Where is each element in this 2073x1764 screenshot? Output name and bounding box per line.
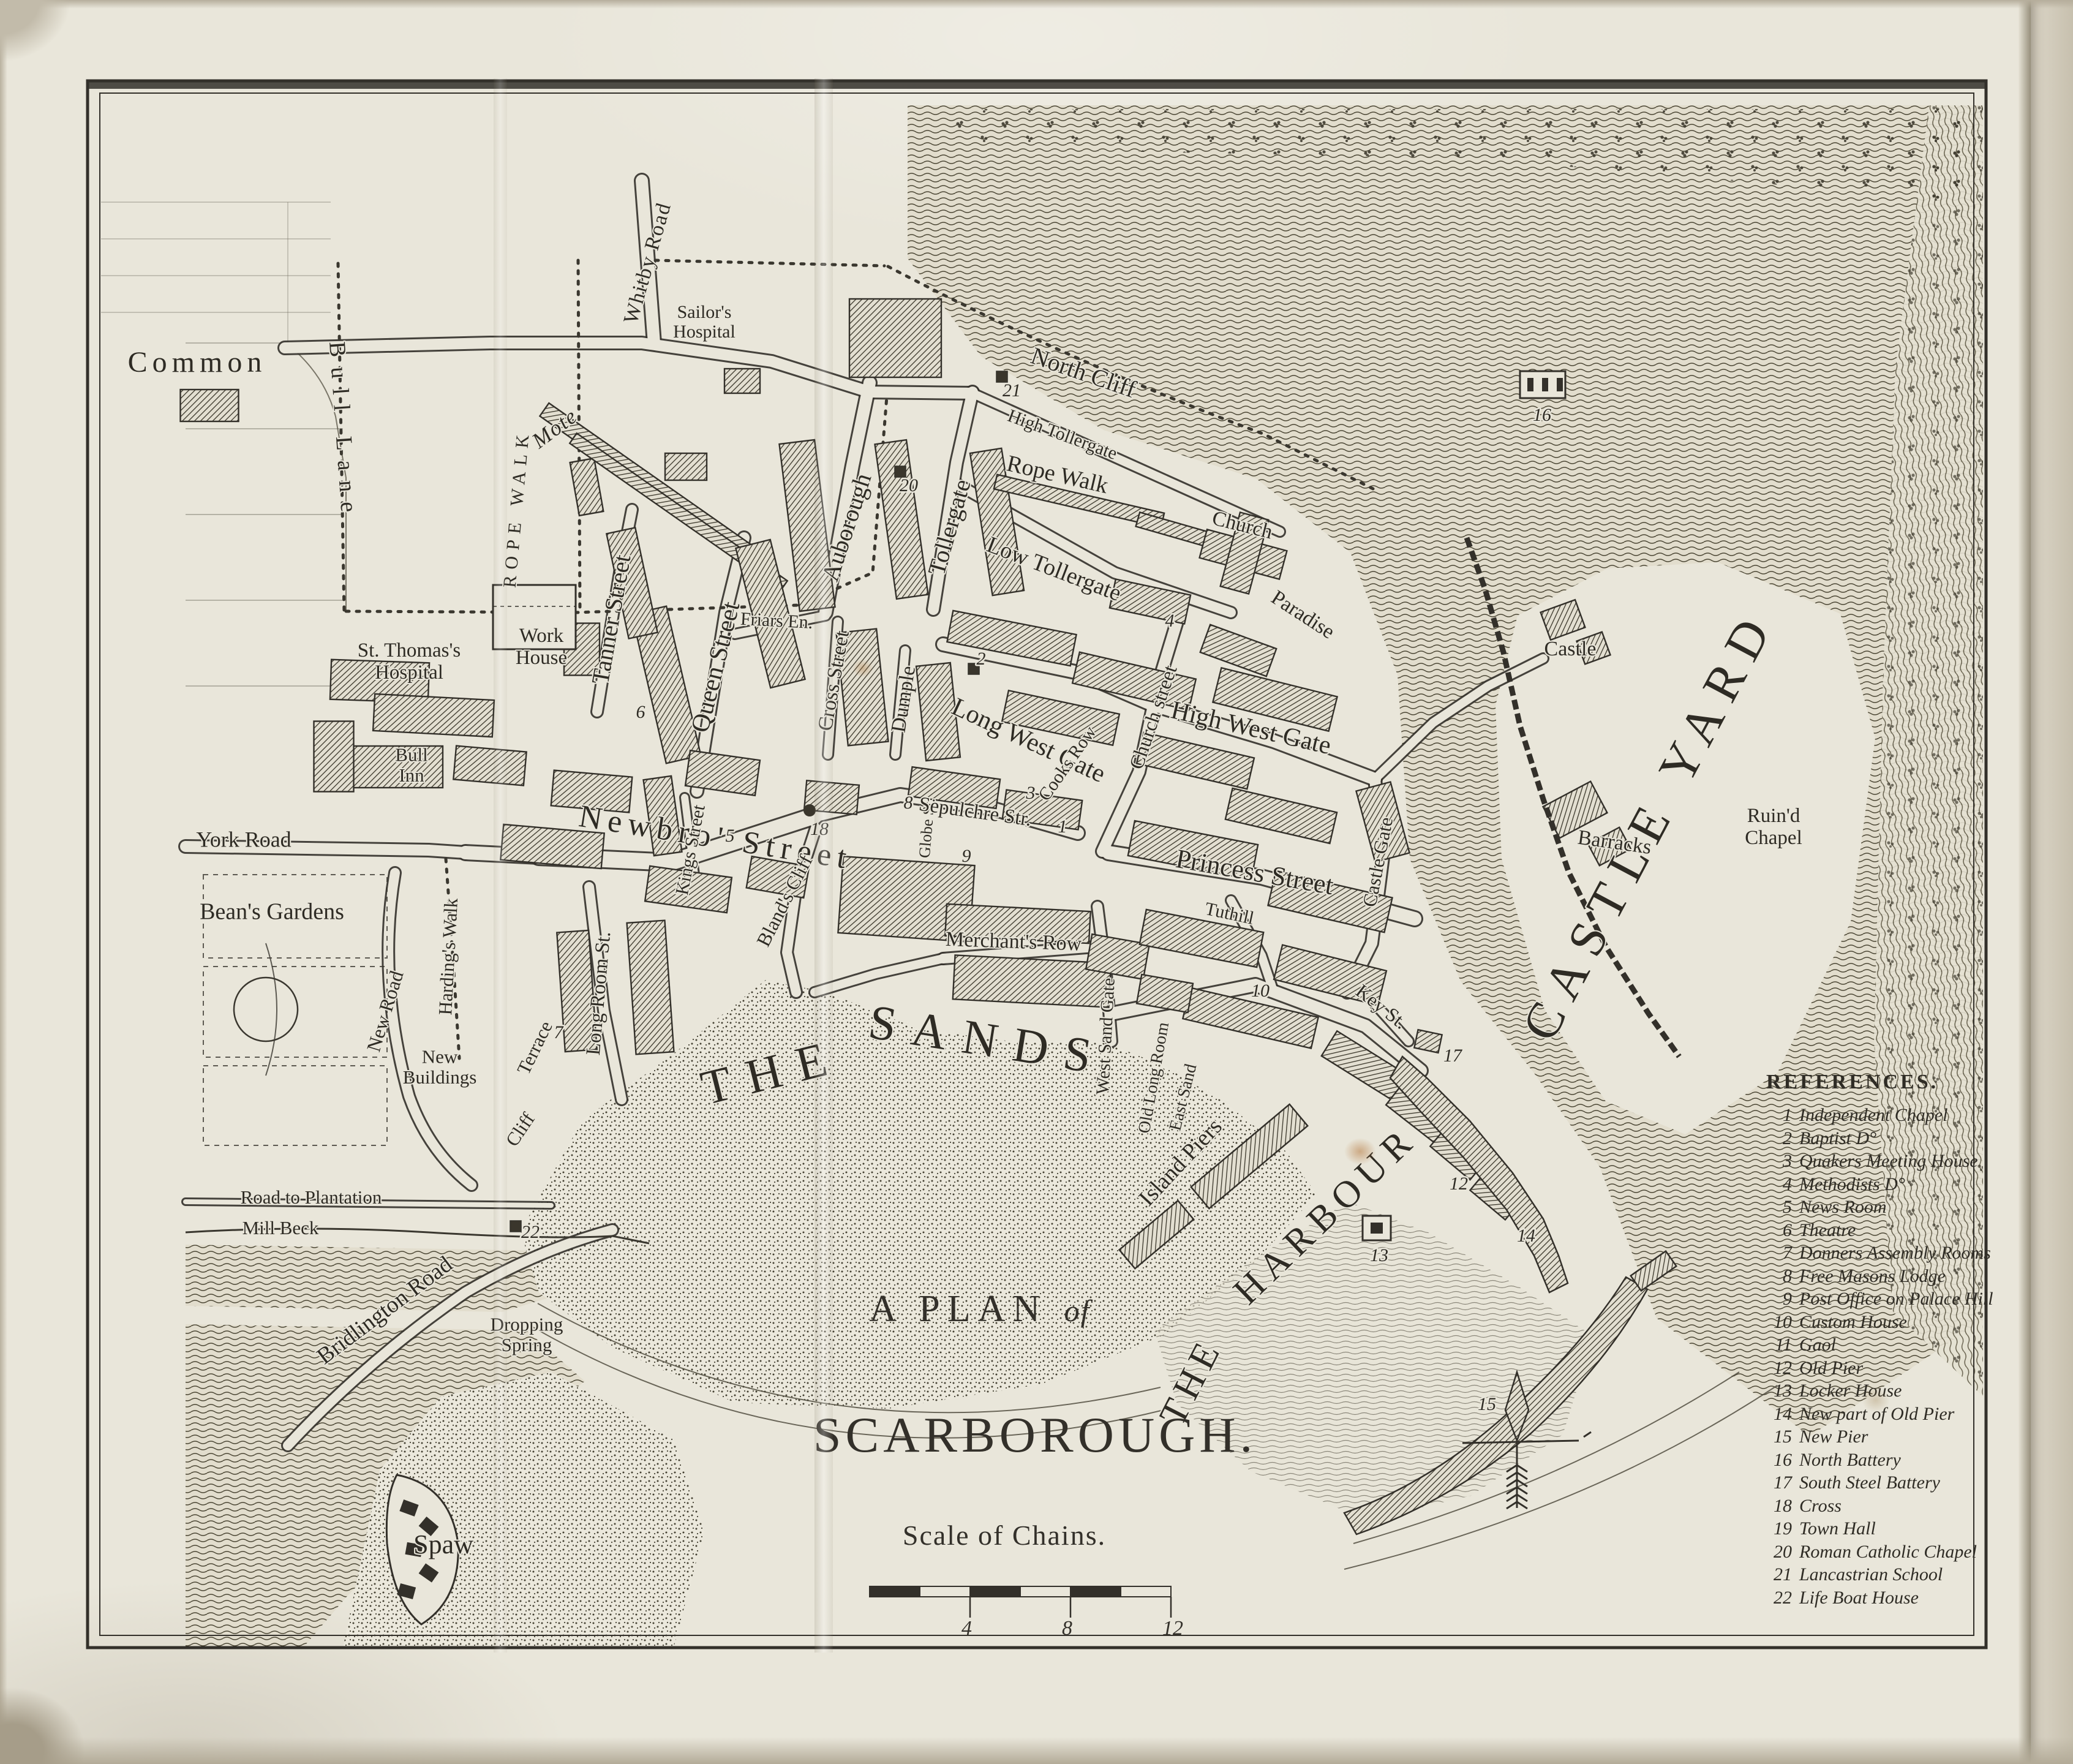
reference-label: New part of Old Pier — [1799, 1403, 2056, 1426]
reference-label: Quakers Meeting House — [1799, 1150, 2056, 1173]
building-block — [875, 440, 928, 599]
reference-label: North Battery — [1799, 1449, 2056, 1472]
reference-label: Donners Assembly Rooms — [1799, 1242, 2056, 1265]
reference-item: 4Methodists D° — [1759, 1173, 2056, 1196]
building-block — [849, 299, 941, 377]
reference-label: Post Office on Palace Hill — [1799, 1287, 2056, 1311]
scale-bar-segment — [920, 1586, 970, 1597]
fort-gun-platform — [1557, 378, 1563, 391]
map-label-mill-beck: Mill Beck — [243, 1217, 319, 1238]
reference-number: 21 — [1759, 1563, 1799, 1586]
map-label-ruind-chapel: Ruin'dChapel — [1745, 805, 1802, 849]
reference-label: Baptist D° — [1799, 1127, 2056, 1150]
reference-number: 17 — [1759, 1471, 1799, 1494]
map-label-rope-walk-west: ROPE WALK — [500, 428, 534, 589]
reference-number: 22 — [1759, 1586, 1799, 1610]
building-block — [453, 746, 526, 786]
scale-bar-tick-label: 4 — [961, 1617, 972, 1640]
reference-label: Free Masons Lodge — [1799, 1265, 2056, 1288]
map-label-york-road: York Road — [196, 827, 291, 851]
reference-item: 14New part of Old Pier — [1759, 1403, 2056, 1426]
scale-bar-tick-label: 12 — [1162, 1617, 1183, 1640]
map-label-queen-street: Queen Street — [686, 599, 745, 736]
reference-item: 15New Pier — [1759, 1425, 2056, 1449]
scale-bar-segment — [1121, 1586, 1171, 1597]
map-title-line-3: Scale of Chains. — [863, 1519, 1145, 1551]
scale-bar-segment — [1070, 1586, 1121, 1597]
reference-number: 5 — [1759, 1196, 1799, 1219]
reference-item: 9Post Office on Palace Hill — [1759, 1287, 2056, 1311]
marker-number-5: 5 — [726, 826, 735, 846]
reference-number: 9 — [1759, 1287, 1799, 1311]
map-label-spaw: Spaw — [413, 1529, 473, 1559]
garden-circle — [234, 978, 298, 1041]
reference-number: 12 — [1759, 1357, 1799, 1380]
marker-building-22 — [510, 1221, 521, 1232]
map-label-castle-gate: Castle Gate — [1358, 815, 1398, 909]
map-label-hardings-walk: Harding's Walk — [434, 897, 462, 1016]
building-block — [1200, 625, 1276, 676]
scale-bar-segment — [970, 1586, 1020, 1597]
footpath-dotted — [655, 260, 884, 266]
reference-label: Custom House — [1799, 1311, 2056, 1334]
references-heading: REFERENCES. — [1759, 1071, 2056, 1094]
reference-item: 12Old Pier — [1759, 1357, 2056, 1380]
map-label-beans-gardens: Bean's Gardens — [200, 899, 344, 925]
reference-item: 11Gaol — [1759, 1333, 2056, 1357]
map-label-merchants-row: Merchant's Row — [945, 928, 1082, 956]
page: { "colors": { "paper": "#e9e6da", "ink":… — [0, 0, 2073, 1764]
building-block — [665, 453, 707, 480]
reference-item: 19Town Hall — [1759, 1517, 2056, 1540]
reference-item: 16North Battery — [1759, 1449, 2056, 1472]
reference-label: Life Boat House — [1799, 1586, 2056, 1610]
reference-item: 8Free Masons Lodge — [1759, 1265, 2056, 1288]
marker-number-22: 22 — [521, 1222, 540, 1242]
reference-number: 18 — [1759, 1494, 1799, 1518]
map-label-sailors-hospital: Sailor'sHospital — [673, 302, 736, 342]
reference-label: Gaol — [1799, 1333, 2056, 1357]
reference-item: 6Theatre — [1759, 1219, 2056, 1242]
garden-plot — [203, 1066, 387, 1145]
fort-gun-platform — [1542, 378, 1548, 391]
marker-number-9: 9 — [962, 846, 971, 866]
reference-item: 3Quakers Meeting House — [1759, 1150, 2056, 1173]
map-title-line-1: A PLAN of — [815, 1287, 1145, 1331]
reference-number: 11 — [1759, 1333, 1799, 1357]
reference-label: Locker House — [1799, 1379, 2056, 1403]
marker-number-4: 4 — [1165, 611, 1175, 631]
reference-number: 3 — [1759, 1150, 1799, 1173]
reference-label: Lancastrian School — [1799, 1563, 2056, 1586]
reference-number: 10 — [1759, 1311, 1799, 1334]
reference-item: 10Custom House — [1759, 1311, 2056, 1334]
reference-item: 1Independent Chapel — [1759, 1104, 2056, 1127]
scale-bar-tick-label: 8 — [1062, 1617, 1072, 1640]
reference-number: 20 — [1759, 1540, 1799, 1564]
north-arrow-crossbar-tick — [1584, 1432, 1591, 1437]
reference-item: 22Life Boat House — [1759, 1586, 2056, 1610]
reference-number: 7 — [1759, 1242, 1799, 1265]
marker-number-18: 18 — [810, 819, 829, 839]
map-label-work-house: WorkHouse — [516, 625, 567, 669]
marker-number-3: 3 — [1026, 783, 1036, 803]
map-label-dropping-spring: DroppingSpring — [491, 1313, 563, 1355]
map-label-friars-en: Friars En. — [740, 609, 813, 633]
street-shore-lane — [815, 959, 943, 992]
building-block — [570, 458, 604, 516]
marker-number-2: 2 — [977, 649, 986, 669]
title-a-plan: A PLAN — [869, 1288, 1047, 1330]
building-block — [627, 921, 674, 1055]
reference-item: 5News Room — [1759, 1196, 2056, 1219]
scale-bar-segment — [870, 1586, 920, 1597]
map-label-road-to-plantation: Road to Plantation — [241, 1186, 382, 1208]
reference-label: Methodists D° — [1799, 1173, 2056, 1196]
reference-number: 13 — [1759, 1379, 1799, 1403]
marker-number-17: 17 — [1443, 1046, 1463, 1066]
map-label-bull-lane: Bull Lane — [324, 341, 362, 522]
map-label-cliff: Cliff — [501, 1109, 539, 1150]
building-block — [724, 369, 760, 393]
locker-house-core — [1371, 1223, 1383, 1234]
map-label-terrace: Terrace — [513, 1017, 557, 1077]
map-label-dumple: Dumple — [887, 665, 920, 734]
reference-number: 14 — [1759, 1403, 1799, 1426]
map-sheet: 4812 CommonBull LaneWhitby RoadSailor'sH… — [0, 0, 2073, 1764]
marker-number-16: 16 — [1533, 405, 1551, 425]
marker-number-21: 21 — [1003, 380, 1021, 401]
building-block — [1414, 1030, 1442, 1053]
marker-number-20: 20 — [900, 475, 918, 496]
map-title-line-2: SCARBOROUGH. — [753, 1406, 1317, 1464]
reference-item: 7Donners Assembly Rooms — [1759, 1242, 2056, 1265]
reference-item: 13Locker House — [1759, 1379, 2056, 1403]
building-block — [314, 722, 354, 792]
reference-number: 15 — [1759, 1425, 1799, 1449]
reference-label: Cross — [1799, 1494, 2056, 1518]
map-label-paradise: Paradise — [1267, 586, 1339, 644]
reference-item: 18Cross — [1759, 1494, 2056, 1518]
reference-label: Roman Catholic Chapel — [1799, 1540, 2056, 1564]
reference-item: 21Lancastrian School — [1759, 1563, 2056, 1586]
reference-number: 19 — [1759, 1517, 1799, 1540]
reference-item: 20Roman Catholic Chapel — [1759, 1540, 2056, 1564]
references-panel: REFERENCES. 1Independent Chapel2Baptist … — [1759, 1071, 2056, 1609]
reference-label: Old Pier — [1799, 1357, 2056, 1380]
neatline-top-band — [88, 81, 1986, 89]
building-block — [779, 440, 835, 611]
reference-label: South Steel Battery — [1799, 1471, 2056, 1494]
map-label-bull-inn: BullInn — [395, 744, 427, 785]
scale-bar-segment — [1020, 1586, 1070, 1597]
building-block — [1225, 788, 1337, 843]
reference-label: Independent Chapel — [1799, 1104, 2056, 1127]
references-list: 1Independent Chapel2Baptist D°3Quakers M… — [1759, 1104, 2056, 1609]
marker-number-1: 1 — [1058, 816, 1067, 837]
map-label-common: Common — [128, 346, 267, 379]
reference-label: Theatre — [1799, 1219, 2056, 1242]
marker-number-10: 10 — [1251, 981, 1270, 1001]
marker-cross-dot — [803, 804, 816, 816]
building-block — [181, 390, 239, 421]
reference-number: 4 — [1759, 1173, 1799, 1196]
marker-number-14: 14 — [1517, 1226, 1535, 1246]
reference-number: 8 — [1759, 1265, 1799, 1288]
marker-number-8: 8 — [904, 793, 913, 813]
reference-number: 1 — [1759, 1104, 1799, 1127]
reference-number: 2 — [1759, 1127, 1799, 1150]
reference-item: 2Baptist D° — [1759, 1127, 2056, 1150]
title-of: of — [1064, 1294, 1091, 1328]
field-lines — [101, 202, 346, 686]
marker-number-15: 15 — [1478, 1394, 1496, 1414]
map-label-castle: Castle — [1544, 638, 1597, 660]
marker-number-7: 7 — [554, 1022, 565, 1042]
marker-number-13: 13 — [1370, 1245, 1388, 1265]
fort-gun-platform — [1527, 378, 1533, 391]
marker-number-12: 12 — [1450, 1174, 1468, 1194]
reference-label: Town Hall — [1799, 1517, 2056, 1540]
map-label-new-buildings: NewBuildings — [403, 1046, 477, 1087]
reference-number: 16 — [1759, 1449, 1799, 1472]
reference-label: New Pier — [1799, 1425, 2056, 1449]
marker-number-6: 6 — [636, 702, 645, 722]
map-label-tollergate: Tollergate — [922, 476, 976, 578]
reference-number: 6 — [1759, 1219, 1799, 1242]
building-block — [373, 694, 494, 737]
reference-label: News Room — [1799, 1196, 2056, 1219]
reference-item: 17South Steel Battery — [1759, 1471, 2056, 1494]
